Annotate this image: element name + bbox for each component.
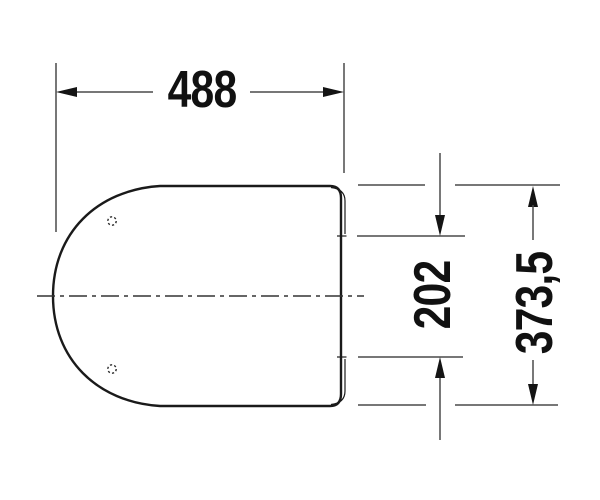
- width-arrowhead-right: [323, 87, 344, 97]
- width-dim-label: 488: [168, 61, 237, 119]
- dimension-drawing-svg: 488 202 373,5: [0, 0, 600, 500]
- hinge-span-dim-label: 202: [404, 261, 462, 330]
- hinge-arrowhead-up: [435, 357, 445, 378]
- dimension-depth: 373,5: [506, 186, 564, 405]
- depth-dim-label: 373,5: [506, 251, 564, 354]
- technical-drawing-canvas: 488 202 373,5: [0, 0, 600, 500]
- depth-arrowhead-up: [528, 186, 538, 207]
- dimension-hinge-span: 202: [404, 153, 462, 440]
- width-arrowhead-left: [56, 87, 77, 97]
- hinge-arrowhead-down: [435, 215, 445, 236]
- depth-arrowhead-down: [528, 384, 538, 405]
